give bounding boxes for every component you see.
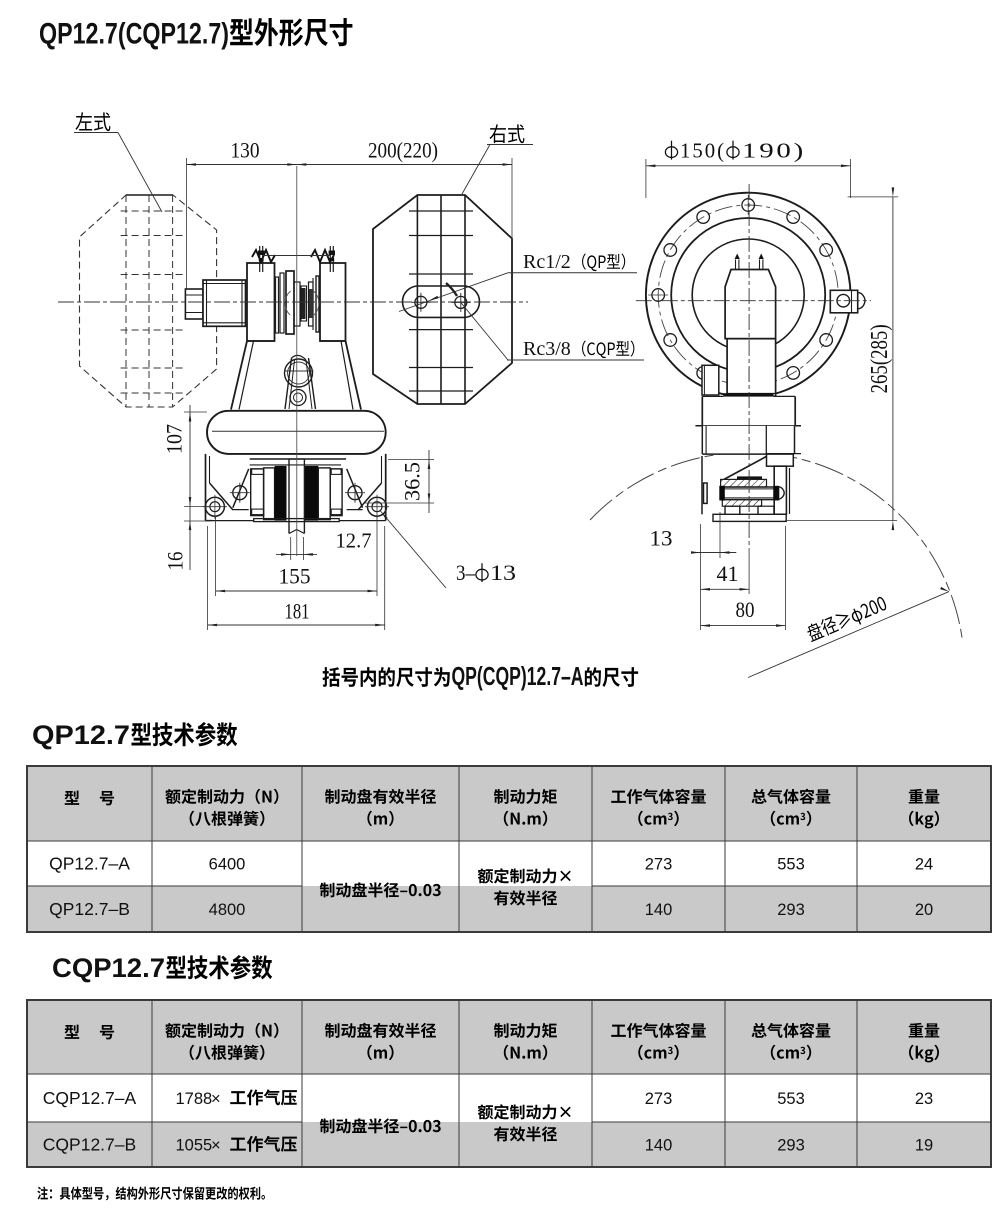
svg-text:QP12.7–B: QP12.7–B: [49, 899, 130, 919]
svg-text:140: 140: [645, 901, 673, 919]
svg-text:265(285): 265(285): [867, 324, 893, 393]
svg-text:12.7: 12.7: [336, 529, 372, 553]
svg-text:1055: 1055: [176, 1136, 213, 1154]
svg-text:181: 181: [285, 599, 310, 624]
svg-text:155: 155: [279, 564, 311, 589]
svg-text:200(220): 200(220): [368, 138, 438, 163]
svg-text:16: 16: [163, 552, 188, 571]
svg-text:4800: 4800: [209, 901, 246, 919]
svg-text:130: 130: [231, 138, 260, 163]
svg-text:19: 19: [915, 1136, 933, 1154]
svg-text:41: 41: [717, 561, 739, 586]
svg-text:13: 13: [490, 560, 516, 585]
svg-text:CQP12.7: CQP12.7: [52, 953, 165, 983]
svg-text:190): 190): [742, 139, 806, 163]
svg-text:1788: 1788: [176, 1090, 213, 1108]
svg-text:150(: 150(: [680, 139, 726, 163]
svg-text:273: 273: [645, 855, 673, 873]
svg-text:×: ×: [211, 1090, 221, 1108]
svg-text:QP12.7: QP12.7: [32, 720, 130, 750]
svg-text:6400: 6400: [209, 855, 246, 873]
svg-text:80: 80: [736, 597, 755, 622]
svg-text:293: 293: [777, 1136, 805, 1154]
svg-text:273: 273: [645, 1090, 673, 1108]
svg-text:QP12.7–A: QP12.7–A: [49, 853, 130, 873]
svg-text:24: 24: [915, 855, 933, 873]
svg-text:Rc3/8: Rc3/8: [523, 338, 571, 360]
svg-text:13: 13: [650, 526, 673, 551]
svg-text:36.5: 36.5: [400, 462, 425, 501]
svg-text:QP12.7(CQP12.7): QP12.7(CQP12.7): [39, 18, 229, 51]
svg-text:×: ×: [211, 1136, 221, 1154]
svg-text:CQP12.7–B: CQP12.7–B: [43, 1134, 136, 1154]
svg-text:Rc1/2: Rc1/2: [523, 251, 571, 273]
svg-text:20: 20: [915, 901, 933, 919]
svg-text:140: 140: [645, 1136, 673, 1154]
svg-text:293: 293: [777, 901, 805, 919]
svg-text:107: 107: [162, 424, 187, 454]
svg-text:3–: 3–: [456, 560, 476, 585]
svg-text:QP(CQP)12.7–A: QP(CQP)12.7–A: [452, 661, 584, 691]
svg-text:553: 553: [777, 1090, 805, 1108]
svg-text:553: 553: [777, 855, 805, 873]
svg-text:23: 23: [915, 1090, 933, 1108]
svg-text:CQP12.7–A: CQP12.7–A: [43, 1088, 137, 1108]
